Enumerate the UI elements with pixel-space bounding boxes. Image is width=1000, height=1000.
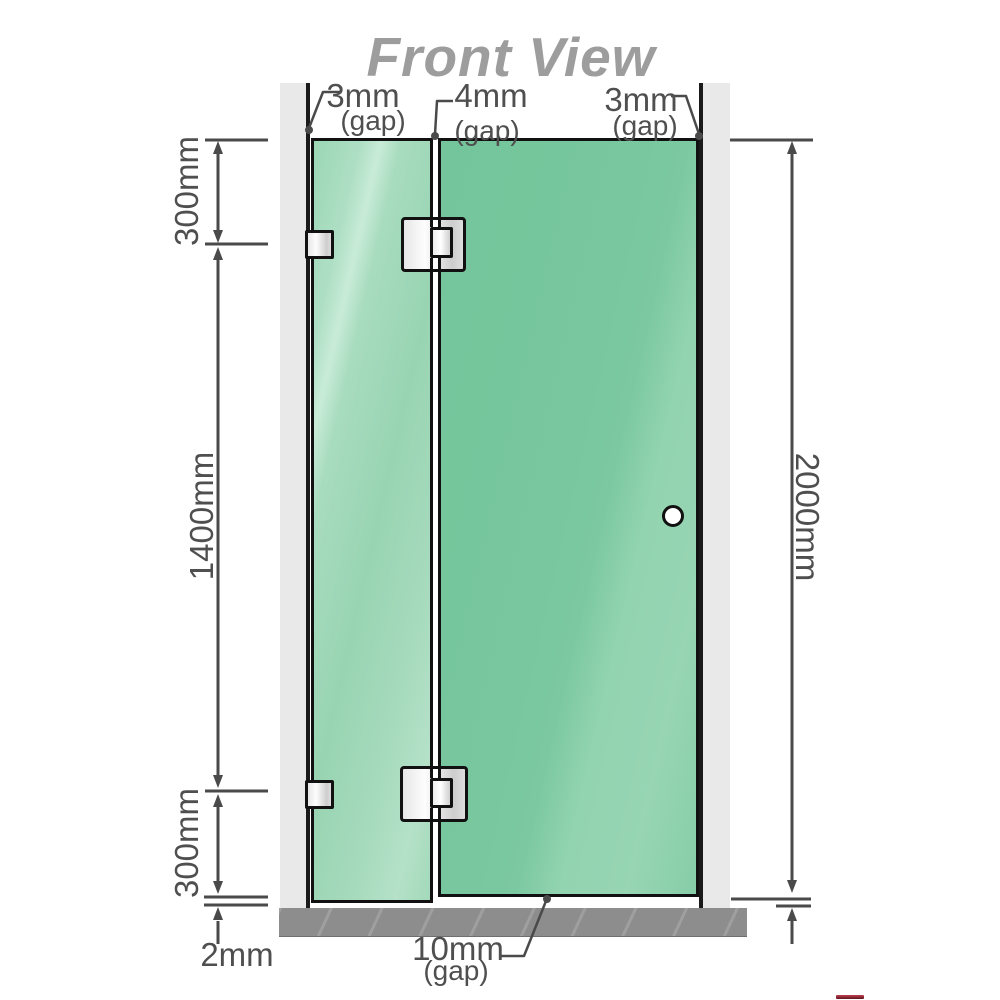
dim-label-right-total: 2000mm	[788, 453, 826, 581]
hinge-knuckle	[430, 778, 453, 808]
dim-label-left-top: 300mm	[168, 136, 206, 246]
hinge-bottom	[400, 766, 468, 822]
glass-panel-door	[438, 138, 699, 897]
dim-left-300-top	[213, 141, 223, 243]
panel-gap-through-hinge	[430, 769, 441, 778]
dim-label-left-bottom: 300mm	[168, 788, 206, 898]
hinge-top	[401, 217, 466, 272]
wall-post-right	[699, 83, 730, 908]
gap-middle-unit: (gap)	[454, 115, 519, 147]
diagram-canvas: Front View	[0, 0, 1000, 1000]
panel-gap-through-hinge	[430, 220, 441, 227]
panel-gap-through-hinge	[430, 808, 441, 819]
gap-right-unit: (gap)	[612, 110, 677, 142]
gap-bottom-unit: (gap)	[423, 955, 488, 987]
leader-gap-middle	[431, 101, 453, 140]
logo-fragment	[836, 995, 864, 999]
panel-gap-through-hinge	[430, 258, 441, 269]
wall-bracket-top	[305, 230, 334, 259]
dim-left-300-bottom	[213, 794, 223, 894]
wall-bracket-bottom	[305, 780, 334, 809]
door-knob	[662, 505, 684, 527]
dim-label-left-middle: 1400mm	[183, 452, 221, 580]
gap-left-unit: (gap)	[340, 105, 405, 137]
gap-middle-value: 4mm	[454, 77, 527, 115]
floor-base	[279, 908, 747, 937]
hinge-knuckle	[430, 227, 453, 258]
dim-label-floor-clearance: 2mm	[200, 936, 273, 974]
